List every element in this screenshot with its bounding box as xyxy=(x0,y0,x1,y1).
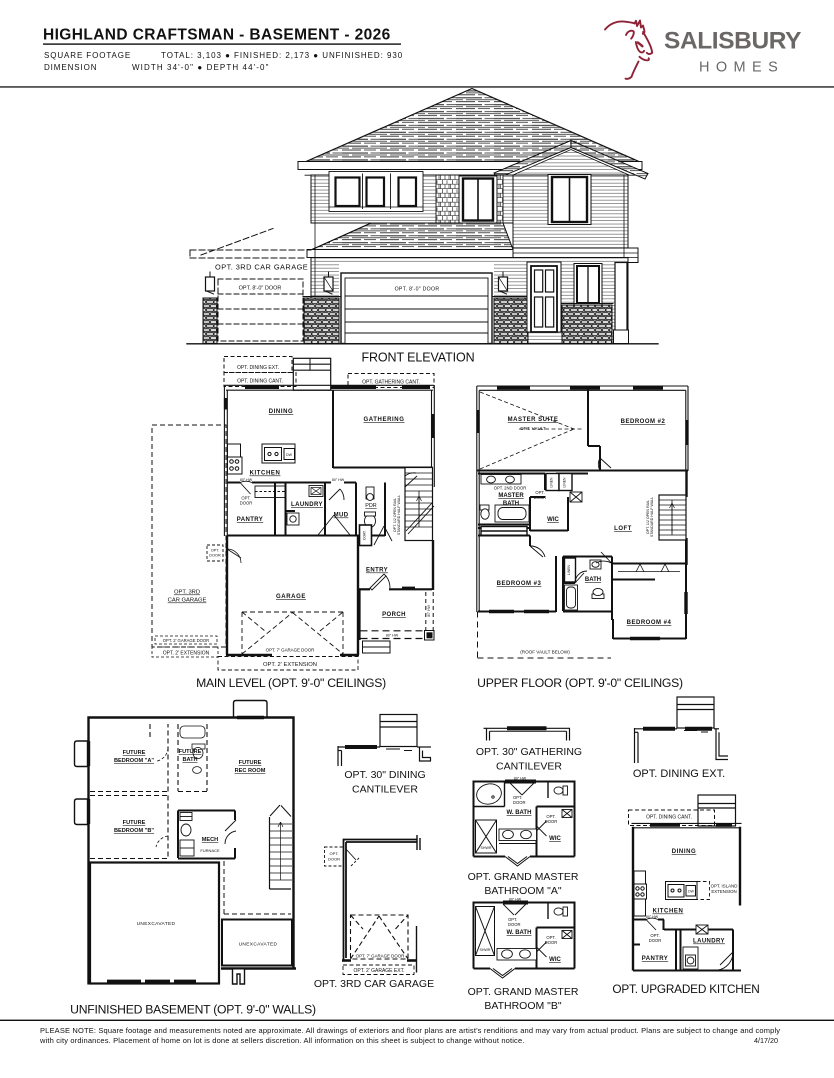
svg-text:DOOR: DOOR xyxy=(534,495,547,500)
svg-text:WIC: WIC xyxy=(549,836,561,842)
svg-text:GARAGE: GARAGE xyxy=(276,594,306,600)
svg-text:DOOR: DOOR xyxy=(328,857,340,862)
svg-text:MASTER SUITE: MASTER SUITE xyxy=(508,417,559,423)
svg-text:OPT. UPGRADED KITCHEN: OPT. UPGRADED KITCHEN xyxy=(612,982,759,996)
svg-text:SHWR: SHWR xyxy=(480,948,491,952)
svg-text:W. BATH: W. BATH xyxy=(507,930,532,936)
svg-text:GATHERING: GATHERING xyxy=(364,417,405,423)
svg-text:EXTENSION: EXTENSION xyxy=(711,889,736,894)
svg-text:OPT. 1/2 OPEN RAIL: OPT. 1/2 OPEN RAIL xyxy=(646,500,650,534)
svg-text:BATH: BATH xyxy=(182,757,197,763)
svg-text:HOMES: HOMES xyxy=(699,60,784,76)
svg-text:BEDROOM #3: BEDROOM #3 xyxy=(497,581,542,587)
svg-text:HIGHLAND CRAFTSMAN - BASEMENT: HIGHLAND CRAFTSMAN - BASEMENT - 2026 xyxy=(43,26,391,43)
svg-text:FUTURE: FUTURE xyxy=(123,750,146,756)
svg-text:DOOR: DOOR xyxy=(240,501,253,506)
svg-text:COAT: COAT xyxy=(363,531,367,540)
svg-text:OPT. 2' EXTENSION: OPT. 2' EXTENSION xyxy=(263,662,317,668)
svg-text:UNEXCAVATED: UNEXCAVATED xyxy=(137,921,176,927)
svg-text:OPT.: OPT. xyxy=(330,851,339,856)
svg-text:80" HW: 80" HW xyxy=(332,478,345,482)
svg-text:DIMENSION: DIMENSION xyxy=(44,63,97,72)
svg-text:4/17/20: 4/17/20 xyxy=(754,1036,778,1045)
svg-text:80" HW: 80" HW xyxy=(386,634,399,638)
svg-text:FURNACE: FURNACE xyxy=(200,848,220,853)
svg-text:WIC: WIC xyxy=(549,957,561,963)
svg-text:PORCH: PORCH xyxy=(382,612,406,618)
svg-text:LINEN: LINEN xyxy=(567,564,571,575)
svg-text:KITCHEN: KITCHEN xyxy=(250,471,281,477)
svg-text:CANTILEVER: CANTILEVER xyxy=(352,784,418,796)
svg-text:OPT. 3RD CAR GARAGE: OPT. 3RD CAR GARAGE xyxy=(215,263,308,272)
svg-text:PANTRY: PANTRY xyxy=(237,517,263,523)
svg-text:OPT. 7' GARAGE DOOR: OPT. 7' GARAGE DOOR xyxy=(356,954,405,959)
svg-text:OPT. GRAND MASTER: OPT. GRAND MASTER xyxy=(468,986,579,998)
svg-text:OPT. 8'-0" DOOR: OPT. 8'-0" DOOR xyxy=(239,286,282,292)
svg-text:PANTRY: PANTRY xyxy=(642,956,668,962)
svg-text:KITCHEN: KITCHEN xyxy=(653,909,684,915)
svg-text:W. BATH: W. BATH xyxy=(507,810,532,816)
svg-text:OPT. DINING CANT.: OPT. DINING CANT. xyxy=(646,815,692,821)
svg-text:OPT. ISLAND: OPT. ISLAND xyxy=(711,884,738,889)
svg-text:SQUARE FOOTAGE: SQUARE FOOTAGE xyxy=(44,51,131,60)
svg-text:OPT. 7' GARAGE DOOR: OPT. 7' GARAGE DOOR xyxy=(266,648,315,653)
svg-text:UNFINISHED BASEMENT (OPT. 9'-0: UNFINISHED BASEMENT (OPT. 9'-0" WALLS) xyxy=(70,1003,316,1017)
svg-text:80" HW: 80" HW xyxy=(509,898,522,902)
svg-text:LAUNDRY: LAUNDRY xyxy=(693,939,725,945)
svg-text:DW: DW xyxy=(286,453,293,457)
svg-text:DINING: DINING xyxy=(269,409,294,415)
svg-text:MECH: MECH xyxy=(202,837,218,843)
svg-text:BEDROOM #4: BEDROOM #4 xyxy=(627,620,672,626)
svg-text:OPT. VAULT: OPT. VAULT xyxy=(520,426,546,431)
svg-text:BATH: BATH xyxy=(585,577,601,583)
svg-text:MAIN LEVEL (OPT. 9'-0" CEILING: MAIN LEVEL (OPT. 9'-0" CEILINGS) xyxy=(196,676,386,690)
svg-text:DINING: DINING xyxy=(672,849,697,855)
svg-text:80" HW: 80" HW xyxy=(514,777,527,781)
svg-text:OPT. 1/2 OPEN RAIL: OPT. 1/2 OPEN RAIL xyxy=(393,498,397,532)
svg-text:UPPER FLOOR (OPT. 9'-0" CEILIN: UPPER FLOOR (OPT. 9'-0" CEILINGS) xyxy=(477,676,683,690)
svg-text:REC ROOM: REC ROOM xyxy=(235,768,266,774)
svg-text:FUTURE: FUTURE xyxy=(123,820,146,826)
svg-text:LINEN: LINEN xyxy=(563,477,567,488)
svg-text:with city ordinances. Placemen: with city ordinances. Placement of home … xyxy=(39,1036,525,1045)
svg-text:WIDTH 34'-0" ● DEPTH 44'-0": WIDTH 34'-0" ● DEPTH 44'-0" xyxy=(132,63,270,72)
svg-text:PDR: PDR xyxy=(365,503,376,509)
svg-text:SHWR: SHWR xyxy=(481,846,492,850)
svg-text:UNEXCAVATED: UNEXCAVATED xyxy=(239,942,278,948)
svg-text:(ROOF VAULT BELOW): (ROOF VAULT BELOW) xyxy=(520,650,570,655)
svg-text:OPT. GATHERING CANT.: OPT. GATHERING CANT. xyxy=(362,380,420,386)
svg-text:FUTURE: FUTURE xyxy=(179,749,202,755)
svg-text:BATHROOM "A": BATHROOM "A" xyxy=(484,885,562,897)
svg-text:FUTURE: FUTURE xyxy=(239,760,262,766)
svg-text:OPT. 30" GATHERING: OPT. 30" GATHERING xyxy=(476,746,582,758)
svg-text:MASTER: MASTER xyxy=(498,493,524,499)
svg-text:BEDROOM #2: BEDROOM #2 xyxy=(621,419,666,425)
svg-text:TOTAL: 3,103 ● FINISHED: 2,173: TOTAL: 3,103 ● FINISHED: 2,173 ● UNFINIS… xyxy=(161,51,403,60)
svg-text:80" HW: 80" HW xyxy=(427,604,431,616)
svg-text:LINEN: LINEN xyxy=(550,477,554,488)
svg-text:FRONT ELEVATION: FRONT ELEVATION xyxy=(361,351,474,365)
svg-text:DOOR: DOOR xyxy=(513,800,526,805)
svg-text:SALISBURY: SALISBURY xyxy=(664,28,801,55)
svg-text:DOOR: DOOR xyxy=(508,922,521,927)
svg-text:OPT.: OPT. xyxy=(211,549,219,553)
svg-text:OPT. 2ND DOOR: OPT. 2ND DOOR xyxy=(494,486,527,491)
svg-text:CANTILEVER: CANTILEVER xyxy=(496,761,562,773)
svg-text:BATHROOM "B": BATHROOM "B" xyxy=(484,1000,562,1012)
svg-text:WIC: WIC xyxy=(547,517,559,523)
svg-text:OPT. DINING CANT.: OPT. DINING CANT. xyxy=(237,379,283,385)
svg-text:OPT. 3RD: OPT. 3RD xyxy=(174,590,200,596)
svg-text:DW: DW xyxy=(688,890,694,894)
svg-text:PLEASE NOTE: Square footage an: PLEASE NOTE: Square footage and measurem… xyxy=(40,1026,780,1035)
svg-text:OPT. GRAND MASTER: OPT. GRAND MASTER xyxy=(468,871,579,883)
svg-text:OPT. DINING EXT.: OPT. DINING EXT. xyxy=(237,365,279,371)
svg-text:OPT. 8'-0" DOOR: OPT. 8'-0" DOOR xyxy=(395,287,440,293)
svg-text:OPT. DINING EXT.: OPT. DINING EXT. xyxy=(633,768,725,780)
svg-text:STANDARD HALF WALL: STANDARD HALF WALL xyxy=(650,497,654,537)
svg-text:CAR GARAGE: CAR GARAGE xyxy=(168,598,207,604)
svg-text:ENTRY: ENTRY xyxy=(366,568,388,574)
svg-text:BEDROOM "A": BEDROOM "A" xyxy=(114,758,154,764)
svg-text:LOFT: LOFT xyxy=(614,526,632,532)
svg-text:LAUNDRY: LAUNDRY xyxy=(291,502,323,508)
svg-text:OPT. 2' GARAGE DOOR: OPT. 2' GARAGE DOOR xyxy=(163,638,209,643)
svg-text:OPT. 2' GARAGE EXT.: OPT. 2' GARAGE EXT. xyxy=(354,968,405,974)
svg-text:OPT. 3RD CAR GARAGE: OPT. 3RD CAR GARAGE xyxy=(314,978,434,990)
svg-text:BEDROOM "B": BEDROOM "B" xyxy=(114,828,154,834)
svg-text:OPT. 30" DINING: OPT. 30" DINING xyxy=(344,769,425,781)
svg-text:OPT. 2' EXTENSION: OPT. 2' EXTENSION xyxy=(163,651,210,657)
svg-text:DOOR: DOOR xyxy=(649,938,662,943)
svg-text:DOOR: DOOR xyxy=(209,554,221,558)
svg-text:STANDARD HALF WALL: STANDARD HALF WALL xyxy=(397,495,401,535)
